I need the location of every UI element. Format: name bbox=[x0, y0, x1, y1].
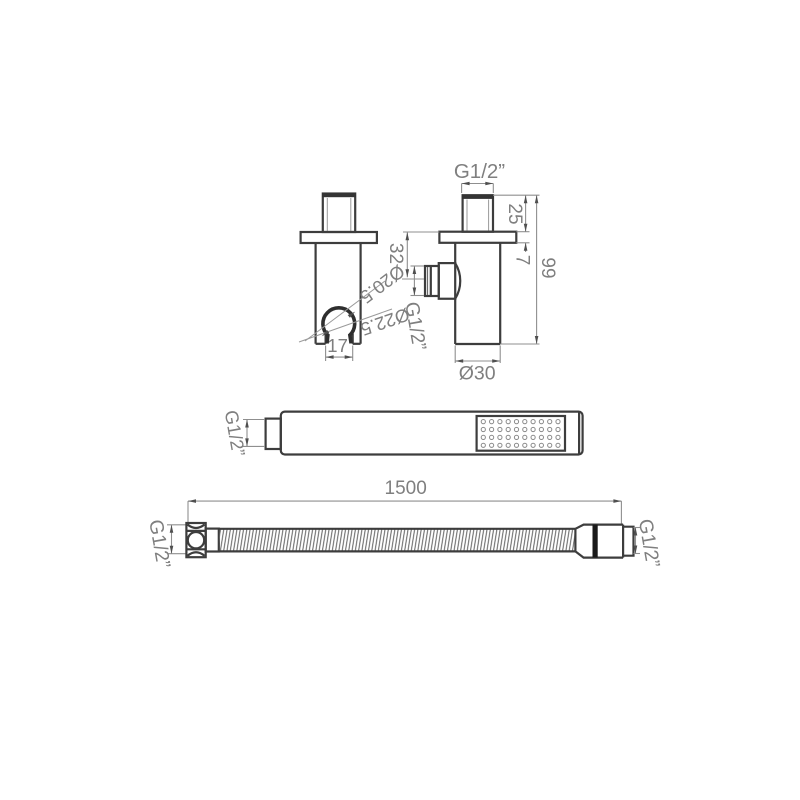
svg-text:32: 32 bbox=[385, 243, 406, 264]
svg-text:G1/2”: G1/2” bbox=[454, 160, 505, 183]
svg-text:25: 25 bbox=[504, 203, 525, 224]
svg-text:Ø30: Ø30 bbox=[459, 363, 496, 385]
svg-text:1500: 1500 bbox=[385, 478, 427, 499]
svg-text:99: 99 bbox=[537, 257, 558, 278]
svg-text:7: 7 bbox=[511, 255, 532, 266]
svg-text:17: 17 bbox=[327, 335, 348, 356]
